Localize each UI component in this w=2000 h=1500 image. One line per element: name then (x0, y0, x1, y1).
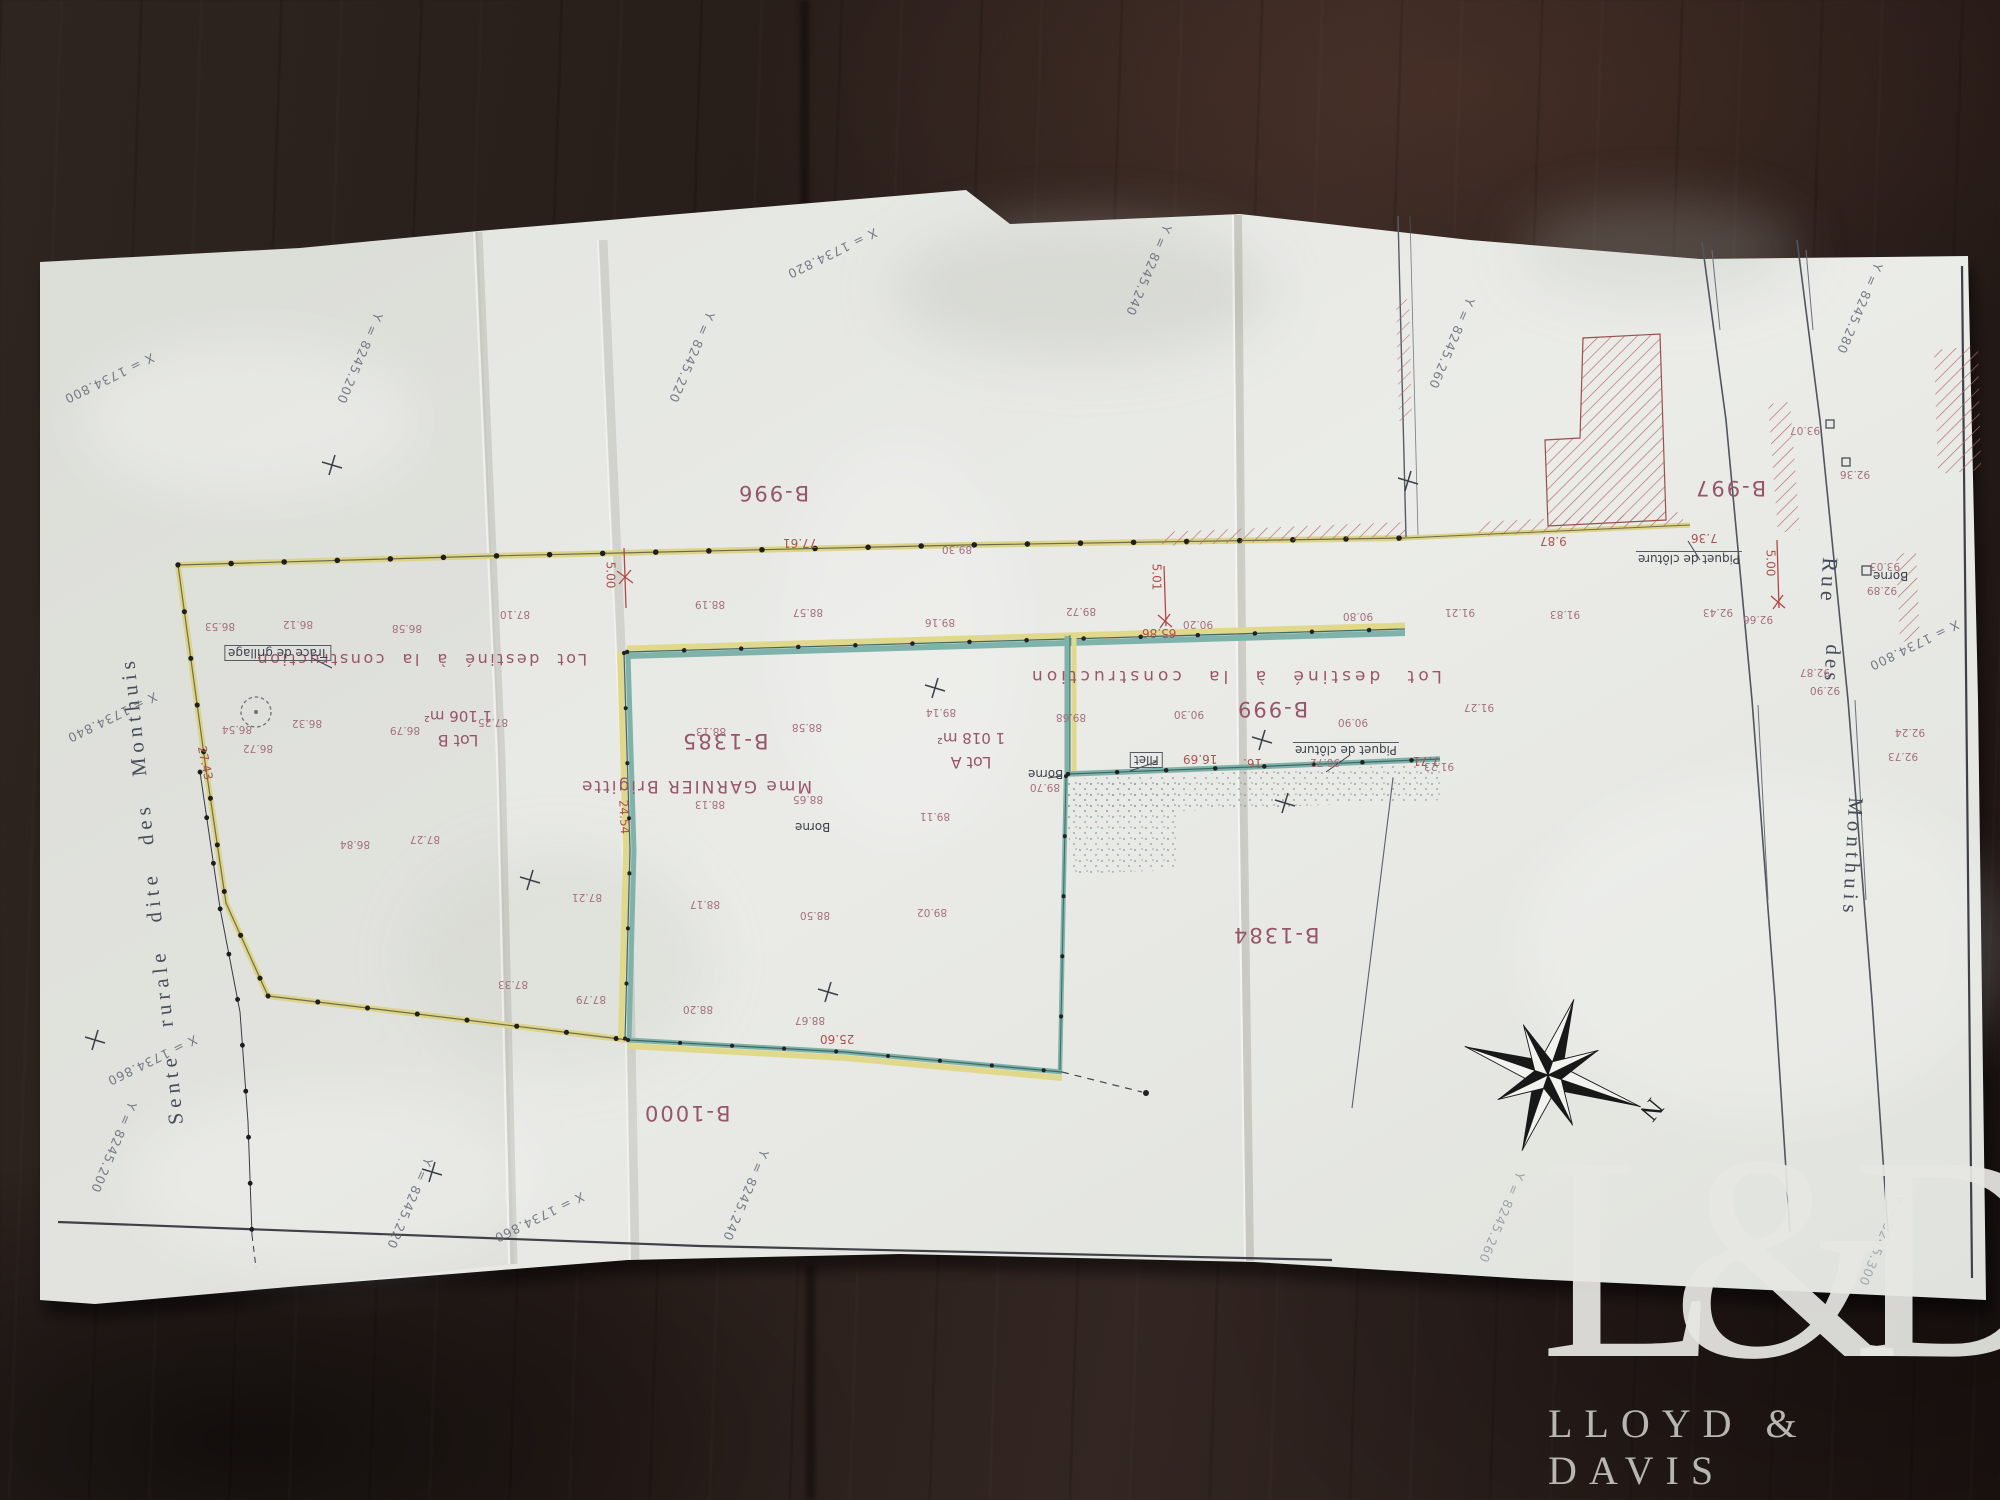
spot-elevation: 86.84 (340, 838, 370, 850)
piquet-cloture-label: Piquet de clôture (1636, 551, 1742, 566)
spot-elevation: 87.27 (410, 833, 440, 845)
spot-elevation: 92.90 (1810, 684, 1840, 696)
spot-elevation: 88.20 (683, 1003, 713, 1015)
distance-label: 16.69 (1183, 752, 1217, 766)
spot-elevation: 87.21 (572, 891, 602, 903)
spot-elevation: 89.16 (925, 616, 955, 628)
grid-coordinate: X = 1734.800 (1867, 617, 1962, 674)
distance-label: 25.60 (820, 1032, 854, 1046)
spot-elevation: 91.83 (1550, 608, 1580, 620)
spot-elevation: 88.17 (690, 898, 720, 910)
spot-elevation: 87.79 (576, 993, 606, 1005)
spot-elevation: 91.21 (1445, 606, 1475, 618)
distance-label: 77.61 (783, 536, 817, 550)
distance-label: 16. (1243, 756, 1262, 770)
lot-a-label: Lot A 1 018 m² (926, 726, 1016, 774)
lot-b-label: Lot B 1 106 m² (413, 704, 503, 752)
owner-label: Mme GARNIER Brigitte (580, 776, 812, 796)
spot-elevation: 86.32 (292, 717, 322, 729)
spot-elevation: 90.30 (1174, 708, 1204, 720)
spot-elevation: 88.57 (793, 606, 823, 618)
spot-elevation: 89.30 (942, 543, 972, 555)
spot-elevation: 88.13 (696, 725, 726, 737)
spot-elevation: 89.02 (917, 906, 947, 918)
distance-label: 9.87 (1540, 534, 1567, 548)
parcel-id-b996: B-996 (737, 481, 809, 505)
street-des-word: des (1818, 644, 1845, 685)
distance-label: 27.43 (195, 745, 216, 782)
distance-label: 65.86 (1142, 626, 1176, 640)
street-monthuis-word: Monthuis (1835, 764, 1870, 950)
spot-elevation: 87.10 (500, 608, 530, 620)
spot-elevation: 86.54 (222, 723, 252, 735)
spot-elevation: 92.43 (1703, 606, 1733, 618)
spot-elevation: 86.79 (390, 724, 420, 736)
spot-elevation: 90.72 (1310, 756, 1340, 768)
borne-label: Borne (1028, 767, 1063, 781)
spot-elevation: 89.68 (1056, 711, 1086, 723)
spot-elevation: 90.90 (1338, 716, 1368, 728)
parcel-id-b999: B-999 (1236, 697, 1308, 721)
grid-coordinate: Y = 8245.220 (666, 310, 718, 406)
spot-elevation: 89.70 (1030, 781, 1060, 793)
grid-coordinate: Y = 8245.260 (1426, 296, 1478, 392)
grid-coordinate: X = 1734.800 (62, 350, 157, 407)
spot-elevation: 88.58 (792, 721, 822, 733)
grid-coordinate: X = 1734.860 (105, 1032, 200, 1089)
borne-label: Borne (795, 820, 830, 834)
piquet-cloture-label: Piquet de clôture (1293, 742, 1399, 757)
spot-elevation: 86.72 (243, 742, 273, 754)
spot-elevation: 89.11 (920, 810, 950, 822)
parcel-id-b1000: B-1000 (643, 1101, 730, 1125)
grid-coordinate: Y = 8245.220 (384, 1156, 436, 1252)
trace-grillage-label: Trace de grillage (224, 645, 331, 661)
spot-elevation: 88.13 (695, 798, 725, 810)
spot-elevation: 88.19 (695, 598, 725, 610)
lot-a-area: 1 018 m² (926, 726, 1016, 749)
zone-label-lot-a: Lot destiné à la construction (1028, 666, 1442, 686)
street-rue-word: Rue (1815, 557, 1843, 606)
spot-elevation: 92.73 (1888, 750, 1918, 762)
grid-coordinate: Y = 8245.200 (334, 311, 386, 407)
spot-elevation: 92.87 (1800, 666, 1830, 678)
spot-elevation: 88.65 (793, 793, 823, 805)
distance-label: 5.01 (1149, 564, 1163, 591)
distance-label: 7.36 (1691, 531, 1718, 545)
spot-elevation: 88.67 (795, 1014, 825, 1026)
spot-elevation: 86.53 (205, 620, 235, 632)
spot-elevation: 87.25 (478, 716, 508, 728)
photo-of-cadastral-plan: { "watermark": { "monogram": "L&D", "nam… (0, 0, 2000, 1500)
lot-a-name: Lot A (926, 749, 1016, 774)
grid-coordinate: X = 1734.860 (492, 1189, 587, 1246)
spot-elevation: 88.50 (800, 909, 830, 921)
spot-elevation: 90.80 (1343, 610, 1373, 622)
spot-elevation: 92.36 (1840, 468, 1870, 480)
spot-elevation: 90.20 (1183, 618, 1213, 630)
spot-elevation: 92.89 (1867, 584, 1897, 596)
spot-elevation: 87.33 (498, 978, 528, 990)
spot-elevation: 89.14 (926, 706, 956, 718)
spot-elevation: 93.03 (1870, 560, 1900, 572)
grid-coordinate: Y = 8245.240 (720, 1148, 772, 1244)
lot-b-name: Lot B (413, 727, 503, 752)
agency-monogram: L&D (1540, 1128, 2000, 1391)
grid-coordinate: Y = 8245.280 (1834, 261, 1886, 357)
spot-elevation: 86.12 (283, 618, 313, 630)
spot-elevation: 93.07 (1790, 424, 1820, 436)
parcel-id-b1384: B-1384 (1232, 923, 1319, 947)
agency-name: LLOYD & DAVIS (1548, 1400, 2000, 1494)
spot-elevation: 91.23 (1424, 760, 1454, 772)
spot-elevation: 89.72 (1066, 605, 1096, 617)
grid-coordinate: Y = 8245.200 (88, 1100, 140, 1196)
grid-coordinate: X = 1734.820 (785, 225, 880, 282)
spot-elevation: 86.58 (392, 622, 422, 634)
grid-coordinate: Y = 8245.260 (1476, 1170, 1528, 1266)
spot-elevation: 92.66 (1743, 613, 1773, 625)
spot-elevation: 92.24 (1895, 726, 1925, 738)
distance-label: 5.00 (603, 562, 617, 589)
grid-coordinate: Y = 8245.240 (1123, 223, 1175, 319)
spot-elevation: 91.27 (1464, 701, 1494, 713)
parcel-id-b997: B-997 (1694, 476, 1766, 500)
distance-label: 5.00 (1763, 550, 1777, 577)
filet-label: Filet (1130, 752, 1163, 768)
distance-label: 24.54 (616, 799, 632, 834)
